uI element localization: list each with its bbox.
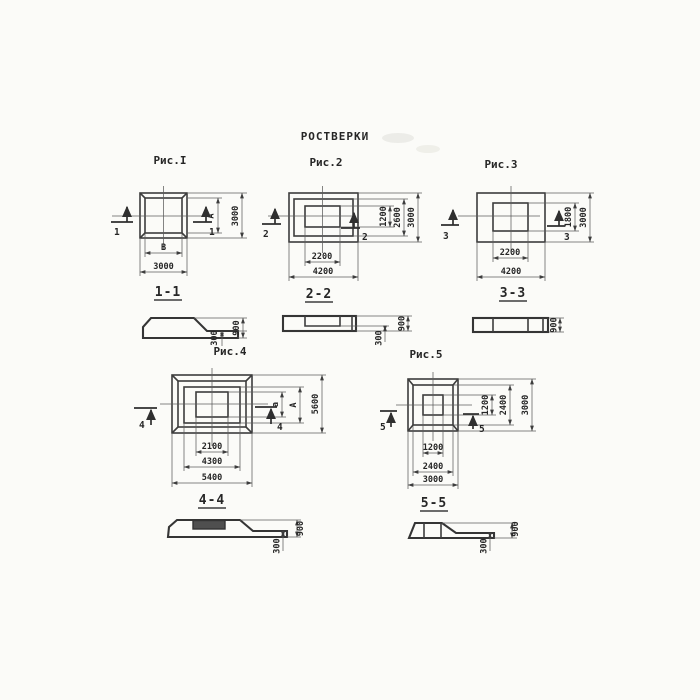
fig4-cut-right-label: 4: [277, 422, 283, 433]
fig1-sec-height-dim: 900: [232, 320, 242, 335]
fig5-section-view: 300 900: [409, 521, 521, 553]
fig1-dim-bottom-inner: В: [161, 243, 166, 253]
fig1-dim-right-inner: А: [207, 213, 217, 218]
fig1-right-dims: А 3000: [188, 193, 247, 238]
fig2-dim-bottom-socket: 2200: [312, 252, 332, 262]
fig3-sec-height-dim: 900: [550, 317, 560, 332]
fig3-section-view: 900: [473, 317, 564, 332]
fig5-dim-right-outer: 3000: [521, 395, 531, 415]
fig4-section-title: 4-4: [199, 493, 225, 508]
fig3-dim-right-socket: 1800: [564, 207, 574, 227]
fig5-dim-right-step: 2400: [499, 395, 509, 415]
fig4-section-view: 300 900: [168, 520, 306, 554]
fig2-sec-step-dim: 300: [375, 330, 385, 345]
section-profile: [283, 316, 356, 331]
fig2-sec-height-dim: 900: [398, 316, 408, 331]
fig1-caption: Рис.I: [153, 154, 186, 167]
scan-smudge: [382, 133, 414, 143]
fig1-dim-bottom-outer: 3000: [153, 262, 173, 272]
fig3: Рис.3 1800 3000 2200 4200: [441, 158, 594, 333]
fig2-cut-marks: 2 2: [262, 209, 368, 243]
section-profile: [143, 318, 238, 338]
fig1-cut-left-label: 1: [114, 227, 120, 238]
fig5-dim-right-socket: 1200: [481, 395, 491, 415]
fig3-cut-left-label: 3: [443, 231, 449, 242]
fig4-dim-bottom-socket: 2100: [202, 442, 222, 452]
chamfer-line: [246, 375, 252, 381]
fig4-dim-right-step: А: [289, 402, 299, 407]
plan-step-edge: [294, 199, 353, 236]
fig4-sec-step-dim: 300: [273, 538, 283, 553]
fig2-plan: [289, 193, 358, 242]
fig1-cut-right-label: 1: [209, 227, 215, 238]
fig4-dim-bottom-step: 4300: [202, 457, 222, 467]
fig3-caption: Рис.3: [484, 158, 517, 171]
fig1-section-title: 1-1: [155, 285, 181, 300]
plan-outer-edge: [289, 193, 358, 242]
pile-cap-drawing: РОСТВЕРКИ Рис.I А 3000: [0, 0, 700, 700]
fig2-dim-right-step: 2600: [393, 207, 403, 227]
fig5-sec-step-dim: 300: [480, 538, 490, 553]
fig2-cut-left-label: 2: [263, 229, 269, 240]
fig2-section-view: 300 900: [283, 316, 412, 346]
chamfer-line: [246, 427, 252, 433]
fig1-center-lines: [112, 186, 204, 249]
section-profile: [409, 523, 494, 538]
fig1-dim-right-outer: 3000: [231, 206, 241, 226]
fig2-dim-right-socket: 1200: [379, 206, 389, 226]
fig2-cut-right-label: 2: [362, 232, 368, 243]
fig3-section-title: 3-3: [500, 286, 526, 301]
fig2-caption: Рис.2: [309, 156, 342, 169]
fig4-sec-height-dim: 900: [296, 521, 306, 536]
fig5-cut-right-label: 5: [479, 424, 485, 435]
fig1-sec-step-dim: 300: [210, 330, 220, 345]
fig5-section-title: 5-5: [421, 496, 447, 511]
section-socket-recess: [193, 521, 225, 530]
fig5-dim-bottom-outer: 3000: [423, 475, 443, 485]
fig3-right-dims: 1800 3000: [529, 193, 594, 242]
section-profile: [168, 520, 287, 537]
fig5-dim-bottom-socket: 1200: [423, 443, 443, 453]
scanned-drawing-sheet: РОСТВЕРКИ Рис.I А 3000: [0, 0, 700, 700]
fig3-dim-right-outer: 3000: [579, 207, 589, 227]
fig2-section-title: 2-2: [306, 287, 332, 302]
fig1: Рис.I А 3000 В: [111, 154, 247, 346]
fig4-cut-left-label: 4: [139, 420, 145, 431]
fig3-dim-bottom-socket: 2200: [500, 248, 520, 258]
fig5-dim-bottom-step: 2400: [423, 462, 443, 472]
fig5-cut-left-label: 5: [380, 422, 386, 433]
fig4-dim-right-outer: 5600: [311, 394, 321, 414]
section-notch: [305, 316, 340, 326]
fig4: Рис.4 а А 5600: [134, 345, 326, 554]
fig3-dim-bottom-outer: 4200: [501, 267, 521, 277]
section-profile: [473, 318, 548, 332]
fig1-section-view: 300 900: [143, 318, 247, 346]
fig4-cut-marks: 4 4: [134, 407, 283, 433]
chamfer-line: [172, 427, 178, 433]
fig5: Рис.5 1200 2400 3000: [380, 348, 536, 554]
plan-socket-edge: [493, 203, 528, 231]
fig5-sec-height-dim: 900: [511, 521, 521, 536]
fig4-dim-bottom-outer: 5400: [202, 473, 222, 483]
fig2-dim-right-outer: 3000: [407, 207, 417, 227]
fig2: Рис.2 1200 2600 3000 2: [262, 156, 422, 346]
fig4-caption: Рис.4: [213, 345, 246, 358]
fig3-cut-right-label: 3: [564, 232, 570, 243]
fig2-dim-bottom-outer: 4200: [313, 267, 333, 277]
chamfer-line: [172, 375, 178, 381]
fig3-cut-marks: 3 3: [441, 210, 570, 243]
sheet-title: РОСТВЕРКИ: [301, 130, 370, 143]
scan-smudge: [416, 145, 440, 153]
fig5-caption: Рис.5: [409, 348, 442, 361]
